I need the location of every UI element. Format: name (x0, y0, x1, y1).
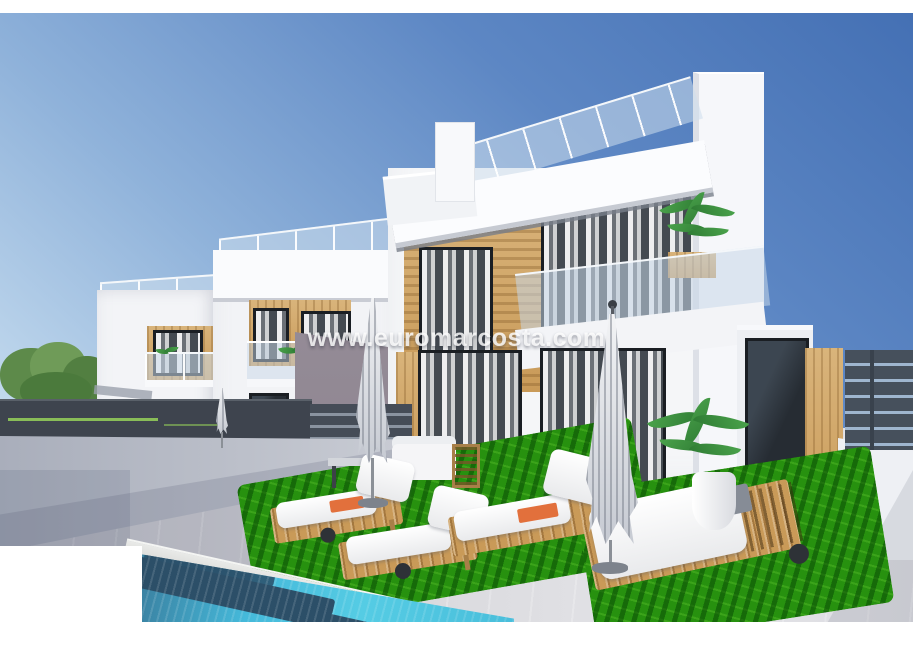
plant-pot (692, 472, 736, 530)
umbrella-base (592, 562, 628, 574)
watermark: www.euromarcosta.com (0, 326, 913, 351)
hedge-line (8, 418, 158, 421)
metal-fence (845, 350, 913, 450)
umbrella-base (358, 498, 388, 508)
potted-plant (644, 396, 748, 536)
property-photo[interactable]: www.euromarcosta.com (0, 0, 913, 672)
page-margin-corner (0, 546, 142, 672)
balcony-parapet (145, 380, 219, 387)
roof-fascia (213, 250, 397, 302)
page-margin-top (0, 0, 913, 13)
closed-umbrella (210, 388, 234, 450)
fence-post (870, 350, 874, 450)
page-canvas: www.euromarcosta.com (0, 0, 913, 672)
parapet-pillar (435, 122, 475, 202)
